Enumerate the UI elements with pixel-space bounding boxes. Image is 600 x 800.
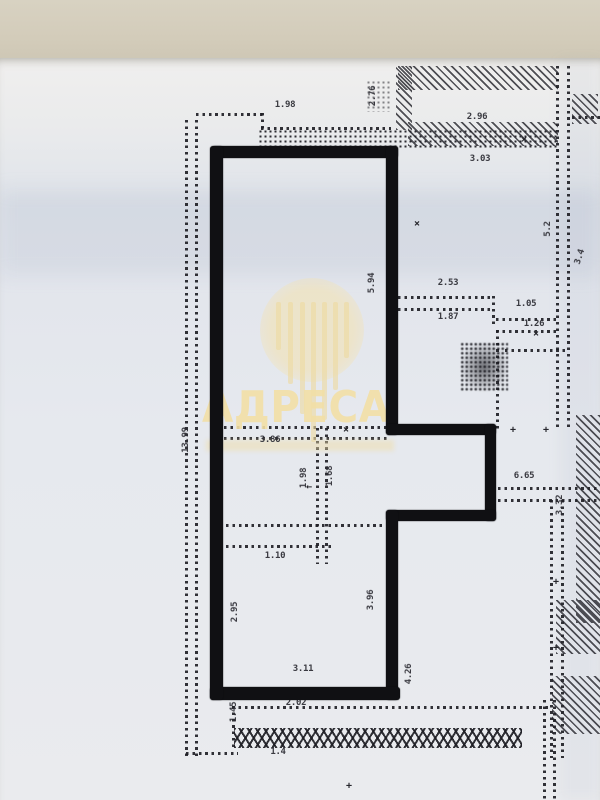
wall-dotted-unit-h3 [226, 545, 332, 548]
dimension-tick: + [543, 425, 549, 436]
unit-outline-top [212, 146, 398, 158]
wall-dotted-balcony-right-1 [543, 700, 546, 800]
unit-outline-left [210, 146, 223, 700]
dimension-tick: + [510, 425, 516, 436]
wall-dotted-balcony-top [232, 706, 548, 709]
dimension-tick: × [533, 329, 539, 340]
balcony-hatch-1 [572, 94, 598, 124]
dimension-tick: × [521, 135, 527, 146]
dimension-label: 1.45 [229, 702, 239, 722]
wall-dotted-corridor-2 [498, 499, 600, 502]
wall-dotted-small-3 [505, 349, 569, 352]
watermark-brand-text: АДРЕСА [202, 382, 390, 433]
balcony-railing [234, 728, 522, 748]
unit-outline-right-upper [386, 146, 398, 435]
unit-outline-notch-bottom [386, 510, 496, 521]
wall-dotted-balcony-right-2 [553, 700, 556, 800]
dimension-label: 1.98 [275, 100, 295, 110]
dimension-label: 3.32 [555, 495, 565, 515]
door-hatch-blob [460, 342, 508, 392]
dimension-label: 3.86 [260, 435, 280, 445]
dimension-label: 6.65 [514, 471, 534, 481]
wall-dotted-right-upper-2 [567, 66, 570, 428]
wall-hatch-topright-bottom [408, 122, 558, 146]
dimension-label: 5.94 [367, 273, 377, 293]
dimension-tick: × [343, 425, 349, 436]
wall-hatch-topright-left [396, 66, 412, 130]
dimension-label: 2.53 [438, 278, 458, 288]
dimension-label: 13.99 [181, 427, 191, 453]
dimension-tick: + [553, 643, 559, 654]
balcony-hatch-4 [552, 676, 600, 734]
dimension-tick: + [346, 781, 352, 792]
dimension-label: 2.76 [368, 86, 378, 106]
dimension-label: 5.2 [543, 221, 553, 236]
wall-dotted-outer-left-2 [195, 120, 198, 758]
dimension-label: 4.26 [404, 664, 414, 684]
dimension-label: 3.11 [293, 664, 313, 674]
dimension-label: 1.05 [516, 299, 536, 309]
wall-dotted-small-2 [496, 330, 558, 333]
unit-outline-notch-top [386, 424, 496, 435]
dimension-label: 1.26 [524, 319, 544, 329]
dimension-tick: ← [306, 482, 312, 493]
watermark-logo-bar [333, 302, 338, 390]
dimension-label: 2.95 [230, 602, 240, 622]
balcony-hatch-3 [556, 600, 600, 654]
balcony-hatch-2 [576, 415, 600, 623]
watermark-logo-bar [288, 302, 293, 384]
wall-hatch-topright-top [398, 66, 558, 90]
wall-dotted-unit-h2 [226, 524, 384, 527]
wall-dotted-outer-top-a [196, 113, 264, 116]
wall-dotted-mid-1 [398, 296, 493, 299]
dimension-label: 3.96 [366, 590, 376, 610]
dimension-label: 3.03 [470, 154, 490, 164]
unit-outline-bottom [210, 687, 400, 700]
wall-dotted-mid-2 [398, 308, 493, 311]
watermark-logo-bar [344, 302, 349, 358]
dimension-label: 1.10 [265, 551, 285, 561]
dimension-tick: × [414, 219, 420, 230]
unit-outline-notch-right [485, 424, 496, 521]
wall-dotted-corridor-1 [498, 487, 600, 490]
dimension-label: 1.4 [270, 747, 285, 757]
dimension-label: 2.96 [467, 112, 487, 122]
floor-plan: АДРЕСА 1.982.762.963.032.531.871.051.265… [0, 0, 600, 800]
dimension-label: 1.87 [438, 312, 458, 322]
wall-dotted-mid-corner [492, 296, 495, 328]
wall-dotted-right-upper-1 [556, 66, 559, 428]
unit-outline-right-lower [386, 510, 398, 700]
wall-dotted-outer-bottom-left [186, 752, 238, 755]
watermark-tagline-blur [206, 440, 394, 451]
dimension-tick: + [553, 577, 559, 588]
dimension-label: 1.68 [325, 466, 335, 486]
watermark-logo-bar [276, 302, 281, 350]
dimension-label: 3.4 [573, 248, 587, 266]
floor-plan-photo: АДРЕСА 1.982.762.963.032.531.871.051.265… [0, 0, 600, 800]
